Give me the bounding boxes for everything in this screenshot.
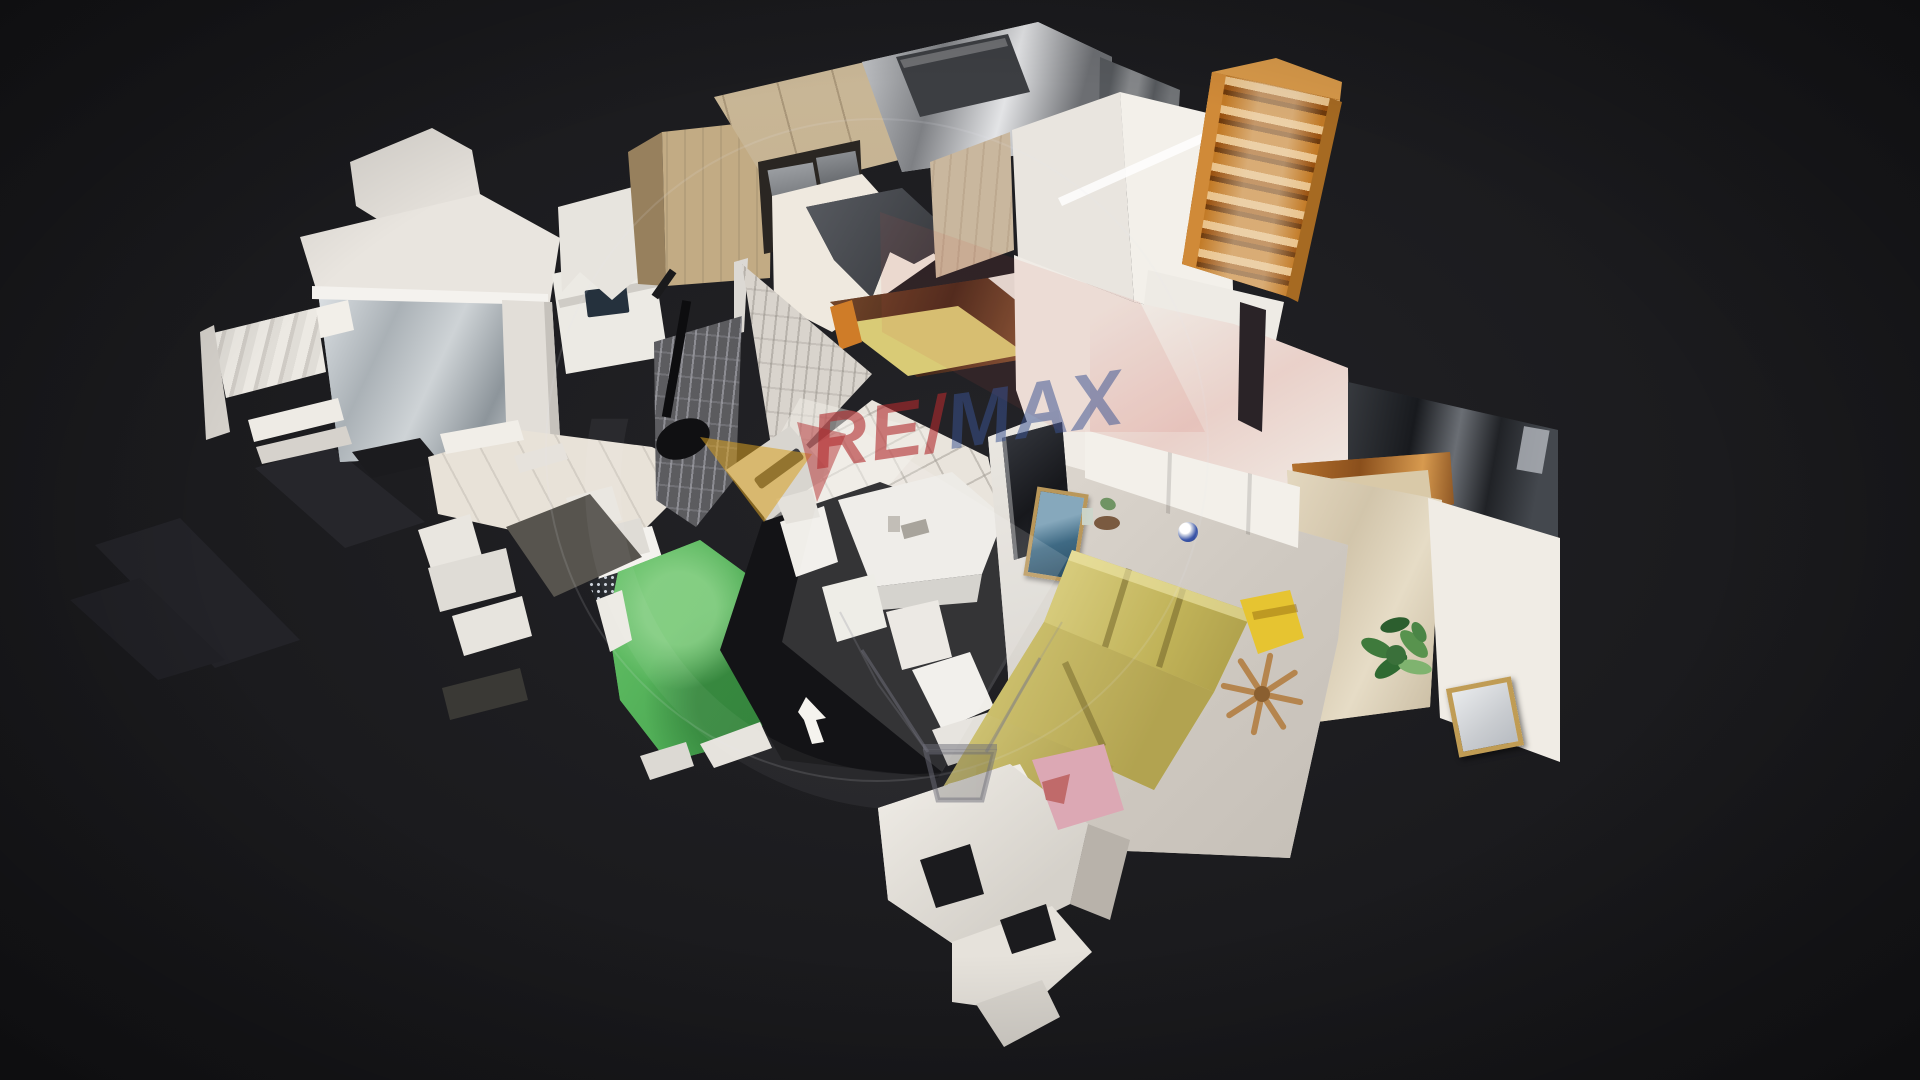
gold-picture-frame [1446,676,1524,757]
plant-leaf [1386,645,1406,665]
wooden-rack-hub [1254,686,1270,702]
blue-ball [1178,522,1198,542]
dollhouse-3d-viewport[interactable]: RE/MAX [0,0,1920,1080]
floor-glass [1082,508,1093,525]
floor-bowl [1094,516,1120,530]
table-prop [888,516,900,532]
